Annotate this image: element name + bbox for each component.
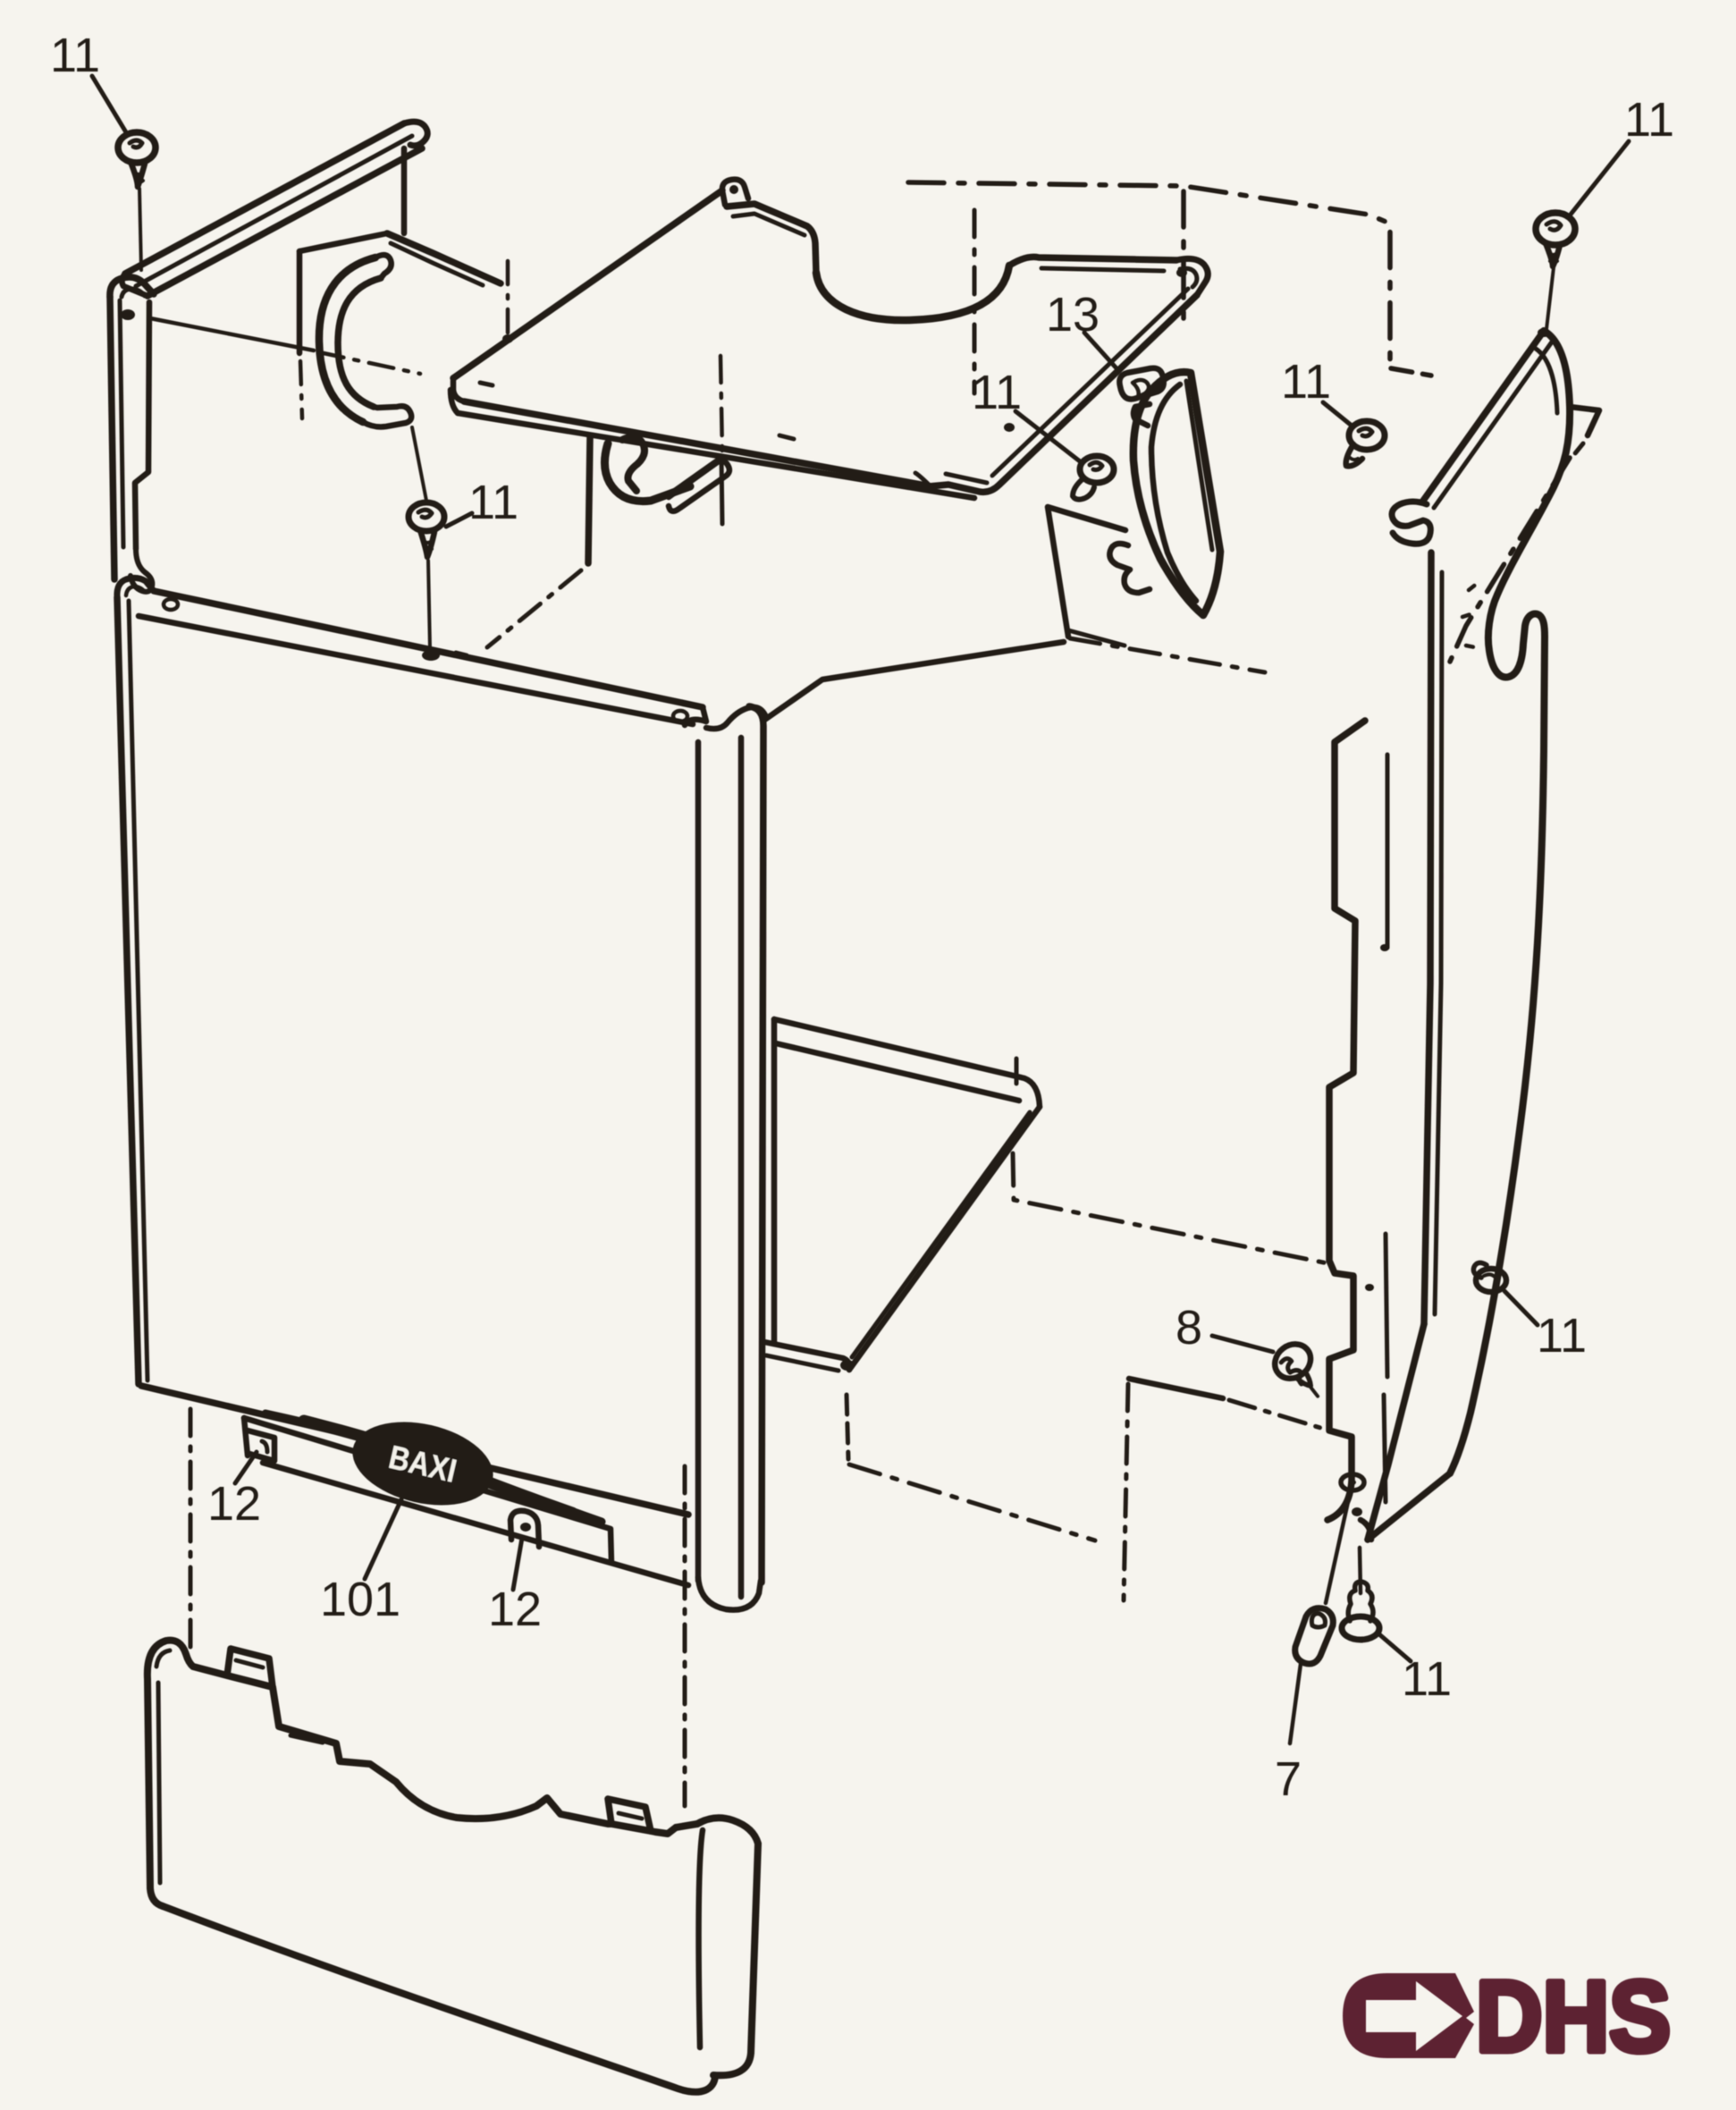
svg-text:11: 11 [50, 29, 100, 82]
svg-text:8: 8 [1176, 1301, 1202, 1355]
svg-text:7: 7 [1275, 1752, 1302, 1806]
svg-text:DHS: DHS [1476, 1961, 1671, 2072]
svg-text:11: 11 [1537, 1309, 1587, 1363]
svg-text:13: 13 [1046, 288, 1100, 342]
svg-text:11: 11 [468, 476, 518, 529]
svg-text:101: 101 [320, 1573, 400, 1626]
svg-text:11: 11 [1624, 93, 1674, 147]
